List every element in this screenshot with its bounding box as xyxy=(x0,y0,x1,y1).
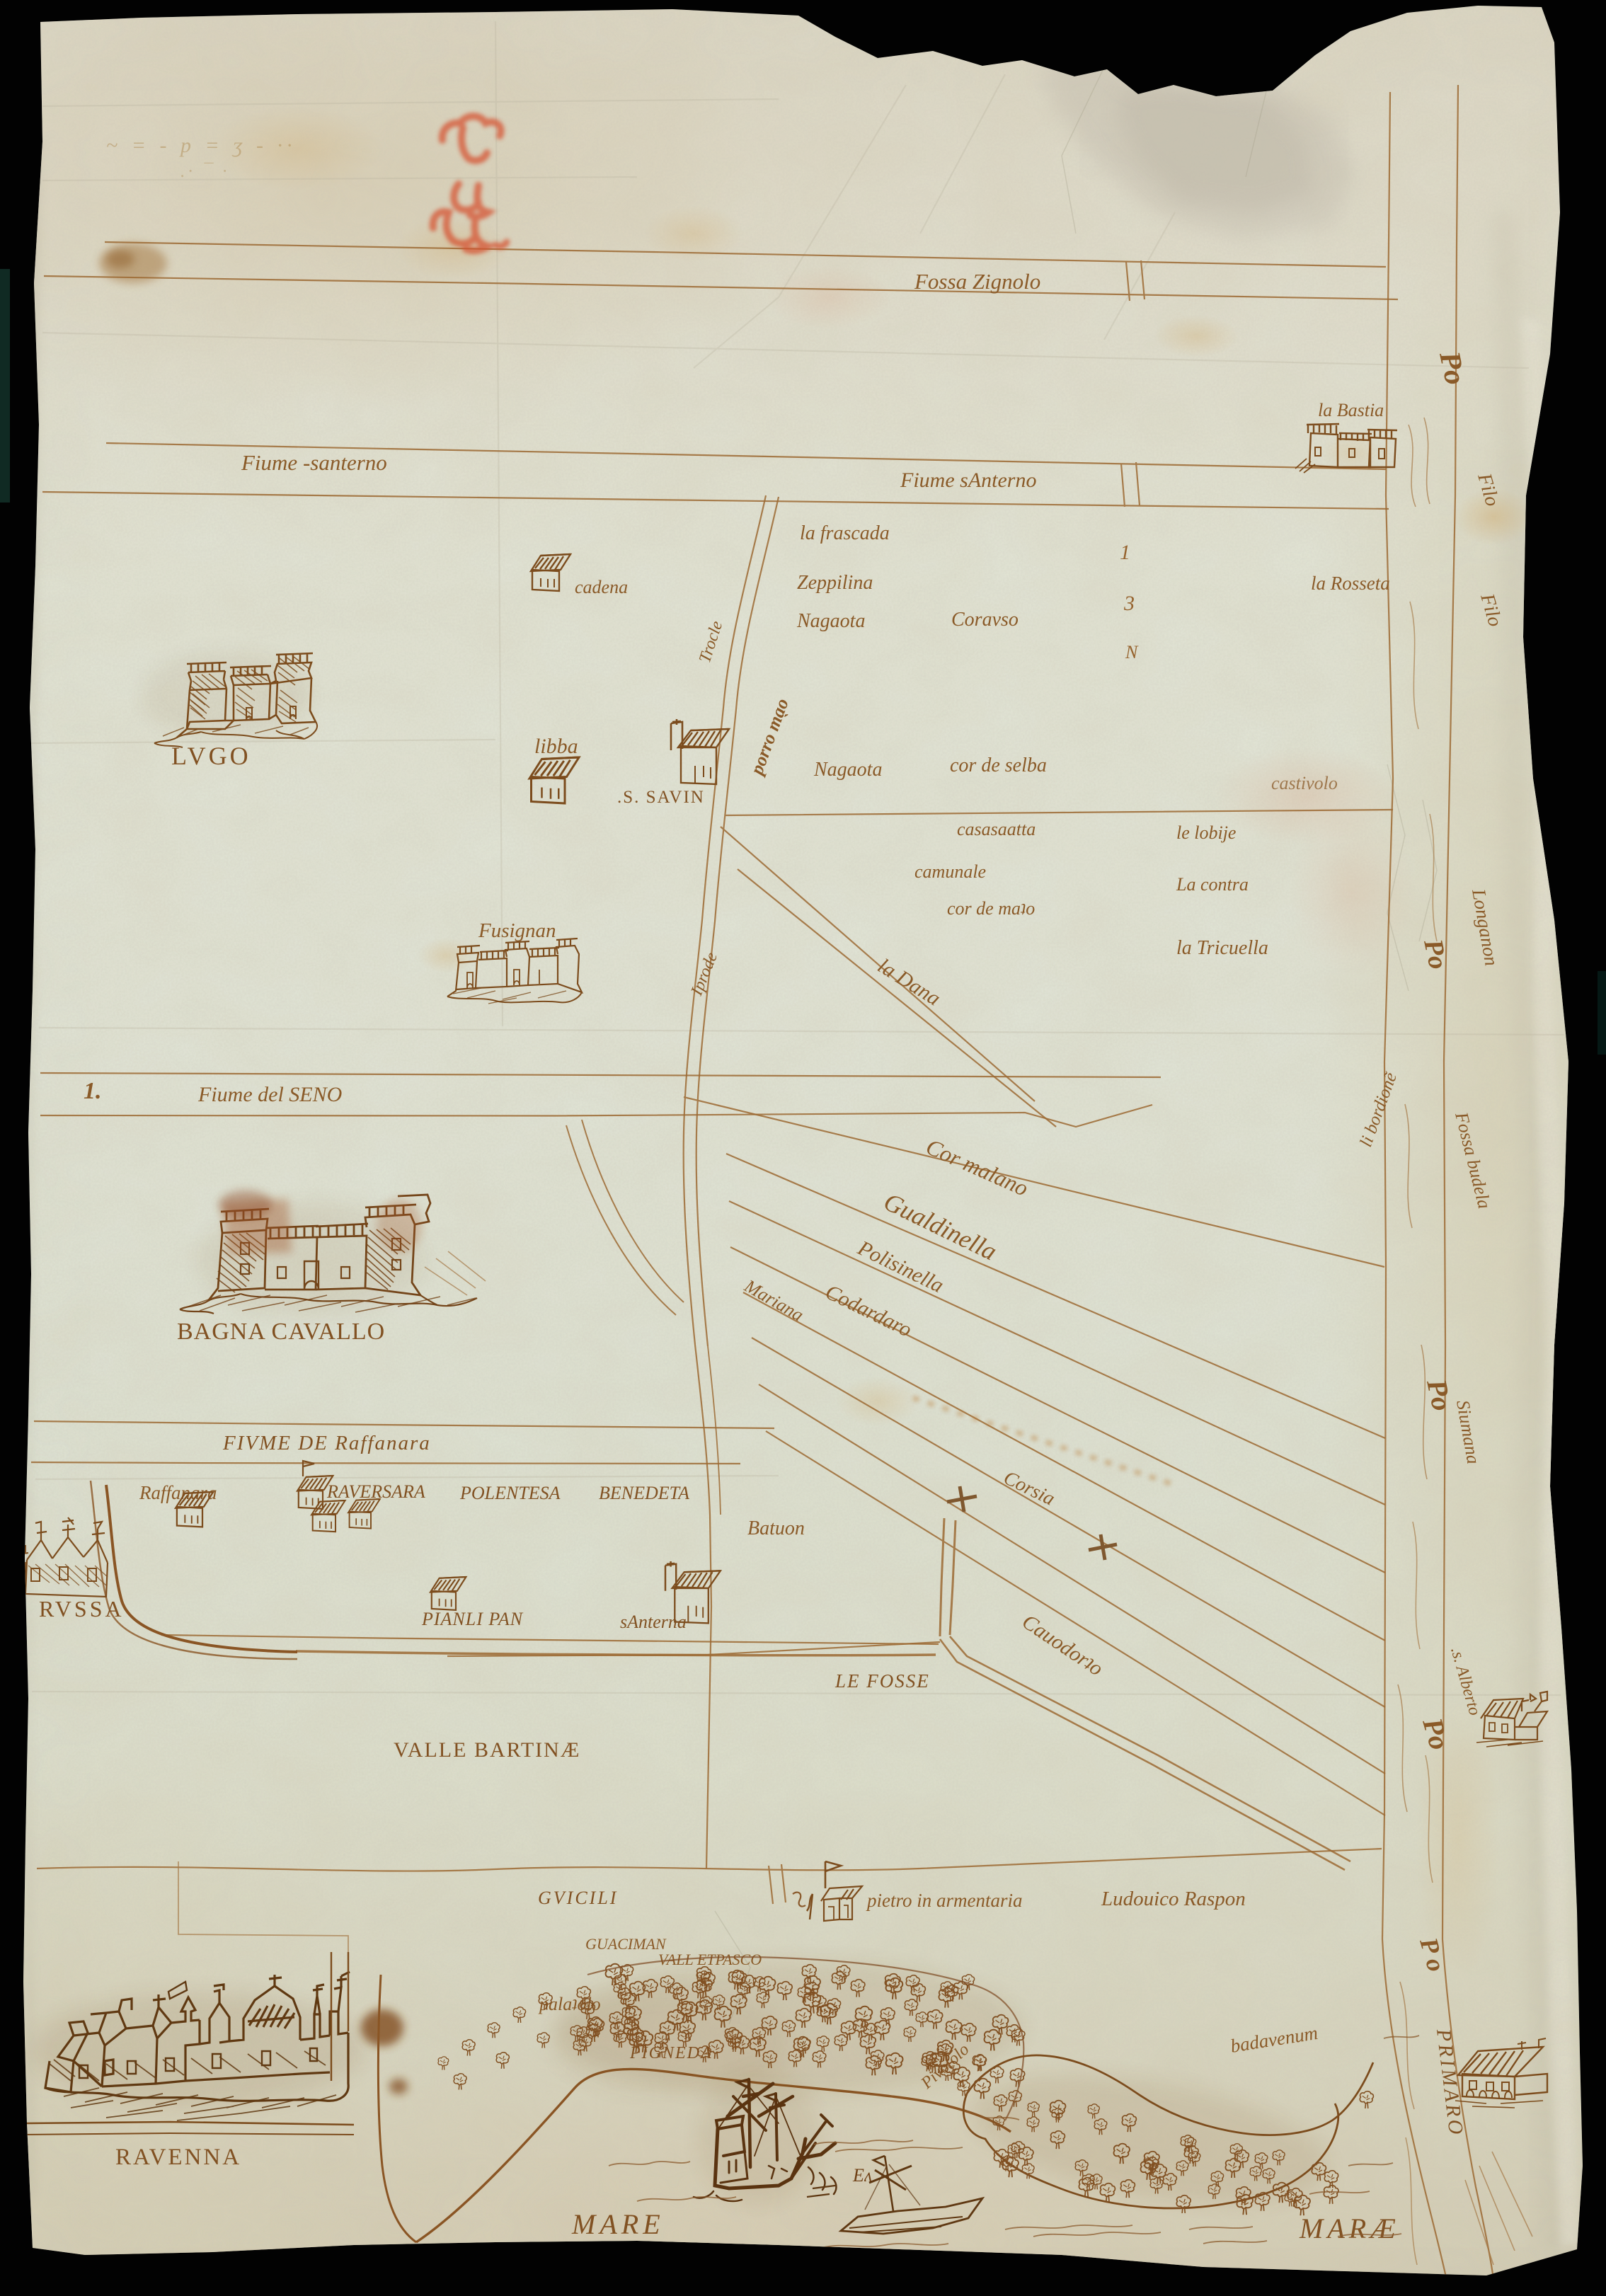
svg-text:~ = - p = ʒ - ··: ~ = - p = ʒ - ·· xyxy=(106,134,297,157)
svg-text:La contra: La contra xyxy=(1176,874,1249,895)
svg-text:MARÆ: MARÆ xyxy=(1299,2212,1400,2244)
svg-text:GUACIMAN: GUACIMAN xyxy=(585,1935,667,1953)
svg-text:FIVME DE Raffanara: FIVME DE Raffanara xyxy=(222,1432,431,1454)
svg-text:POLENTESA: POLENTESA xyxy=(459,1483,561,1503)
svg-text:GVICILI: GVICILI xyxy=(538,1888,618,1908)
svg-text:Zeppilina: Zeppilina xyxy=(797,572,873,594)
svg-text:VALLE BARTINÆ: VALLE BARTINÆ xyxy=(394,1738,580,1762)
svg-text:la frascada: la frascada xyxy=(800,522,890,544)
svg-text:cadena: cadena xyxy=(575,577,628,597)
svg-text:Ludouico Raspon: Ludouico Raspon xyxy=(1101,1888,1246,1910)
svg-text:Fiume sAnterno: Fiume sAnterno xyxy=(900,469,1036,492)
svg-text:BENEDETA: BENEDETA xyxy=(599,1483,689,1503)
svg-text:Fusignan: Fusignan xyxy=(478,919,556,942)
svg-text:RVSSA: RVSSA xyxy=(39,1596,125,1621)
svg-text:Nagaota: Nagaota xyxy=(813,759,882,781)
svg-text:Batuon: Batuon xyxy=(747,1517,805,1539)
svg-text:castivolo: castivolo xyxy=(1271,773,1338,793)
svg-text:Nagaota: Nagaota xyxy=(796,610,865,632)
svg-text:.· ¯ ·: .· ¯ · xyxy=(180,161,230,181)
svg-text:cor de maʇo: cor de maʇo xyxy=(947,898,1035,919)
svg-text:la Tricuella: la Tricuella xyxy=(1176,937,1268,959)
svg-text:la Rosseta: la Rosseta xyxy=(1311,573,1390,594)
svg-text:Fiume -santerno: Fiume -santerno xyxy=(241,450,387,475)
svg-text:Po: Po xyxy=(1418,936,1453,972)
svg-text:Po: Po xyxy=(1433,348,1472,388)
svg-text:BAGNA CAVALLO: BAGNA CAVALLO xyxy=(177,1319,385,1345)
svg-text:N: N xyxy=(1125,642,1139,662)
svg-text:.S. SAVIN: .S. SAVIN xyxy=(617,788,705,807)
svg-text:LE FOSSE: LE FOSSE xyxy=(834,1670,930,1692)
svg-text:3: 3 xyxy=(1123,592,1135,615)
svg-text:camunale: camunale xyxy=(914,861,986,882)
svg-text:LVGO: LVGO xyxy=(171,742,251,770)
svg-text:Po: Po xyxy=(1421,1376,1458,1414)
svg-text:la Bastia: la Bastia xyxy=(1318,400,1384,420)
svg-text:le lobije: le lobije xyxy=(1176,822,1236,843)
svg-text:cor de selba: cor de selba xyxy=(950,754,1047,776)
svg-text:Fiume del SENO: Fiume del SENO xyxy=(197,1083,342,1106)
svg-text:RAVENNA: RAVENNA xyxy=(115,2145,241,2170)
svg-text:pietro in armentaria: pietro in armentaria xyxy=(866,1890,1023,1911)
svg-text:1: 1 xyxy=(1120,541,1130,564)
svg-text:1.: 1. xyxy=(84,1078,102,1104)
svg-text:casasaatta: casasaatta xyxy=(957,819,1036,839)
svg-text:Coravso: Coravso xyxy=(951,609,1019,631)
svg-text:libba: libba xyxy=(534,735,578,758)
svg-text:PIANLI PAN: PIANLI PAN xyxy=(421,1609,524,1629)
svg-text:MARE: MARE xyxy=(571,2208,665,2240)
svg-text:Fossa Zignolo: Fossa Zignolo xyxy=(914,269,1040,294)
